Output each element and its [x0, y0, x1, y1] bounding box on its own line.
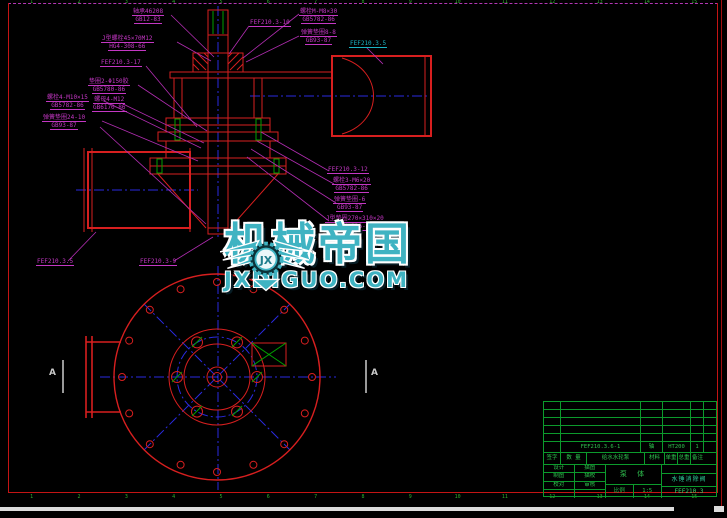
bottom-window-bar — [0, 507, 674, 511]
section-mark-left: A — [49, 368, 56, 378]
bom-header-row: 签字 数 量 给水水轮泵 材料 单重 总重 备注 — [544, 453, 716, 465]
annotation-washer-6: 弹簧垫圈-6GB93-87 — [333, 196, 366, 212]
annotation-bolt-m10: 螺栓4-M10×15GB5782-86 — [46, 94, 89, 110]
annotation-bearing: 轴承46208GB12-83 — [132, 8, 164, 24]
annotation-washer-24: 弹簧垫圈24-10GB93-87 — [42, 114, 86, 130]
drawing-number-cell: FEF210.3 — [662, 487, 716, 498]
signature-grid: 设计描图 制图描校 校对审核 — [544, 465, 606, 498]
watermark-monogram: JX — [259, 254, 273, 267]
annotation-fef-3-5-top: FEF210.3.5 — [349, 40, 387, 48]
section-mark-right: A — [371, 368, 378, 378]
scale-value: 1:5 — [634, 485, 661, 498]
bottom-window-nub — [714, 506, 724, 512]
annotation-bolt-m6: 螺栓3-M6×20GB5782-86 — [332, 177, 371, 193]
annotation-fef-9: FEF210.3-9 — [139, 258, 177, 266]
watermark-logo: JX — [220, 222, 312, 300]
annotation-fef-3-5-bottom: FEF210.3.5 — [36, 258, 74, 266]
annotation-fef-17: FEF210.3-17 — [100, 59, 142, 67]
annotation-fef-10: FEF210.3-10 — [249, 19, 291, 27]
scale-label: 比例 — [606, 485, 634, 498]
cad-drawing-sheet: 123456789101112131415 123456789101112131… — [0, 0, 727, 518]
part-name-cell: 泵 体 — [606, 465, 661, 485]
annotation-bolt-m8: 螺栓M-M8×30GB5782-86 — [299, 8, 338, 24]
bom-row: FEF210.3.6-1 轴 HT200 1 — [544, 442, 716, 453]
product-name-cell: 水锤消除阀 — [662, 474, 716, 487]
title-block: FEF210.3.6-1 轴 HT200 1 签字 数 量 给水水轮泵 材料 单… — [543, 401, 717, 497]
annotation-gasket-150: 垫圈2-Φ150胶GB5780-86 — [88, 78, 130, 94]
annotation-washer-8: 弹簧垫圈8-8GB93-87 — [300, 29, 337, 45]
annotation-nut-m12: 螺母4-M12GB6170-86 — [92, 96, 127, 112]
annotation-j-bolt: J型螺栓45×70M12HG4-308-66 — [101, 35, 154, 51]
annotation-fef-12: FEF210.3-12 — [327, 166, 369, 174]
watermark: JX 机械帝国 JXDIGUO.COM — [220, 222, 530, 291]
